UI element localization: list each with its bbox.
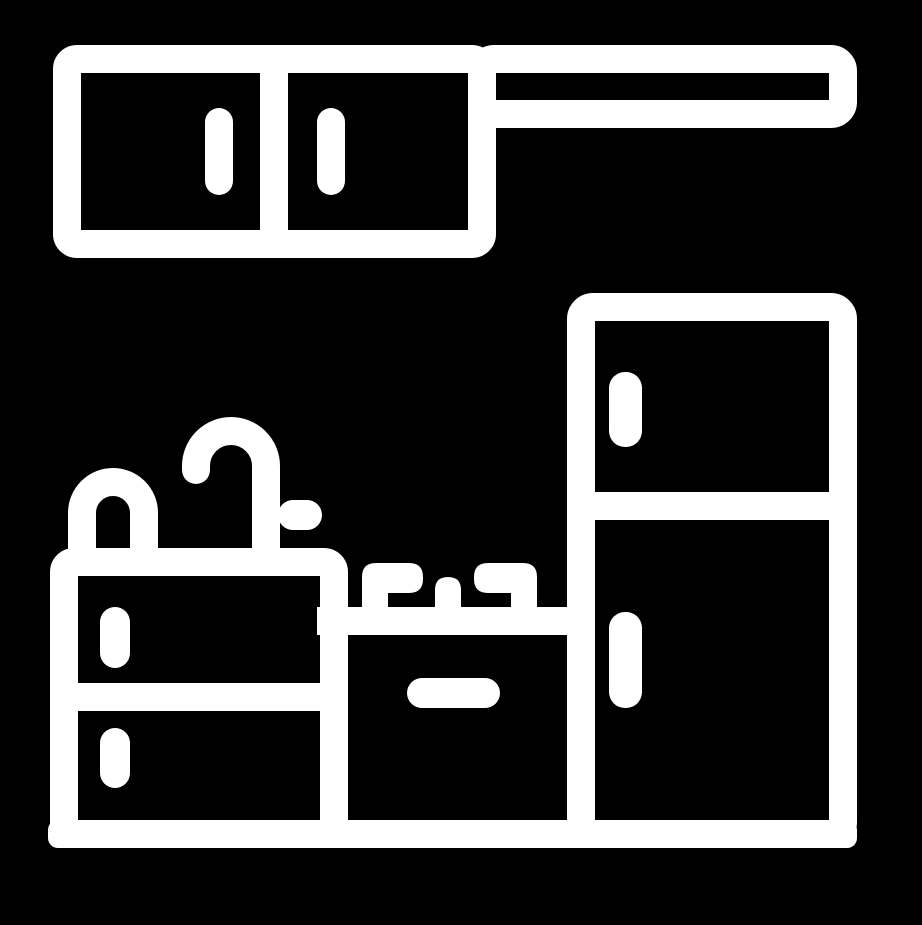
base-plinth — [48, 820, 857, 848]
burner-center-nub-icon — [435, 577, 461, 612]
faucet-lever — [278, 500, 322, 530]
wall-cabinet-right-handle — [317, 108, 345, 195]
wall-cabinet-left-handle — [205, 108, 233, 195]
freezer-handle — [609, 372, 642, 447]
kitchen-icon — [0, 0, 922, 925]
oven-handle — [407, 678, 500, 708]
fridge-handle — [609, 612, 642, 708]
background — [0, 0, 922, 925]
drawer-top-handle — [100, 607, 130, 668]
drawer-bottom-handle — [100, 728, 130, 788]
kitchen-icon-canvas — [0, 0, 922, 925]
